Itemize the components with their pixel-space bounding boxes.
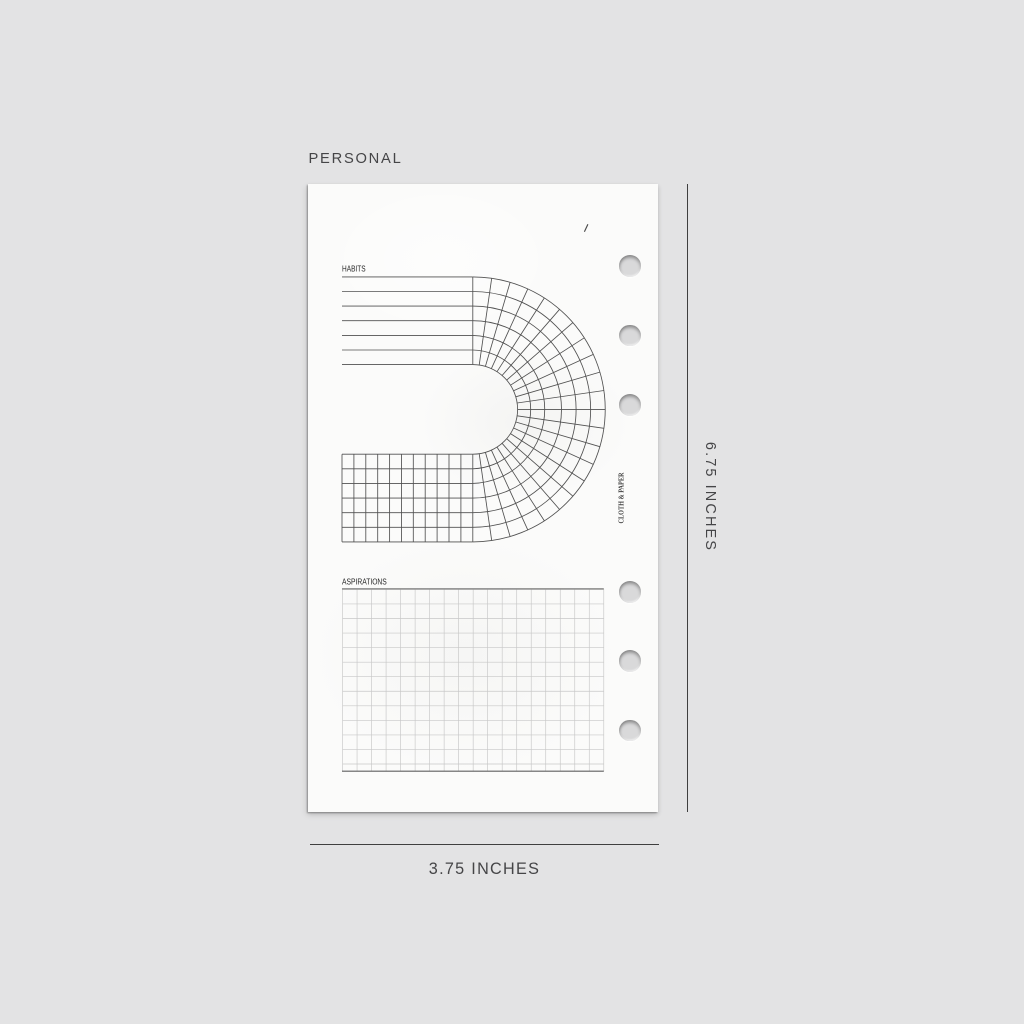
svg-text:HABITS: HABITS [342,264,366,273]
svg-text:ASPIRATIONS: ASPIRATIONS [342,577,387,586]
svg-text:CLOTH & PAPER: CLOTH & PAPER [618,472,626,524]
